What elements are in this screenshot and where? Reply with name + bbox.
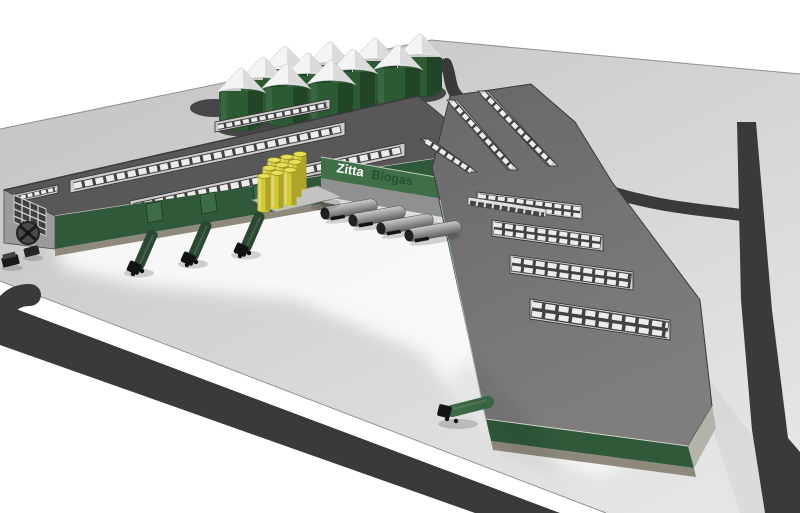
access-road-bottom-hook: [6, 295, 30, 306]
ventilation-fan-icon: [17, 222, 39, 244]
yellow-tank: [271, 171, 284, 210]
loading-dock-flap: [200, 192, 217, 214]
rendering-canvas: Zitta Biogas: [0, 0, 800, 513]
truck-wheel: [445, 417, 449, 421]
yellow-tank: [284, 168, 297, 207]
loading-dock-flap: [146, 201, 163, 223]
truck-wheel: [454, 419, 458, 423]
biogas-plant-3d-render: Zitta Biogas: [0, 0, 800, 513]
yellow-tank: [258, 174, 271, 213]
